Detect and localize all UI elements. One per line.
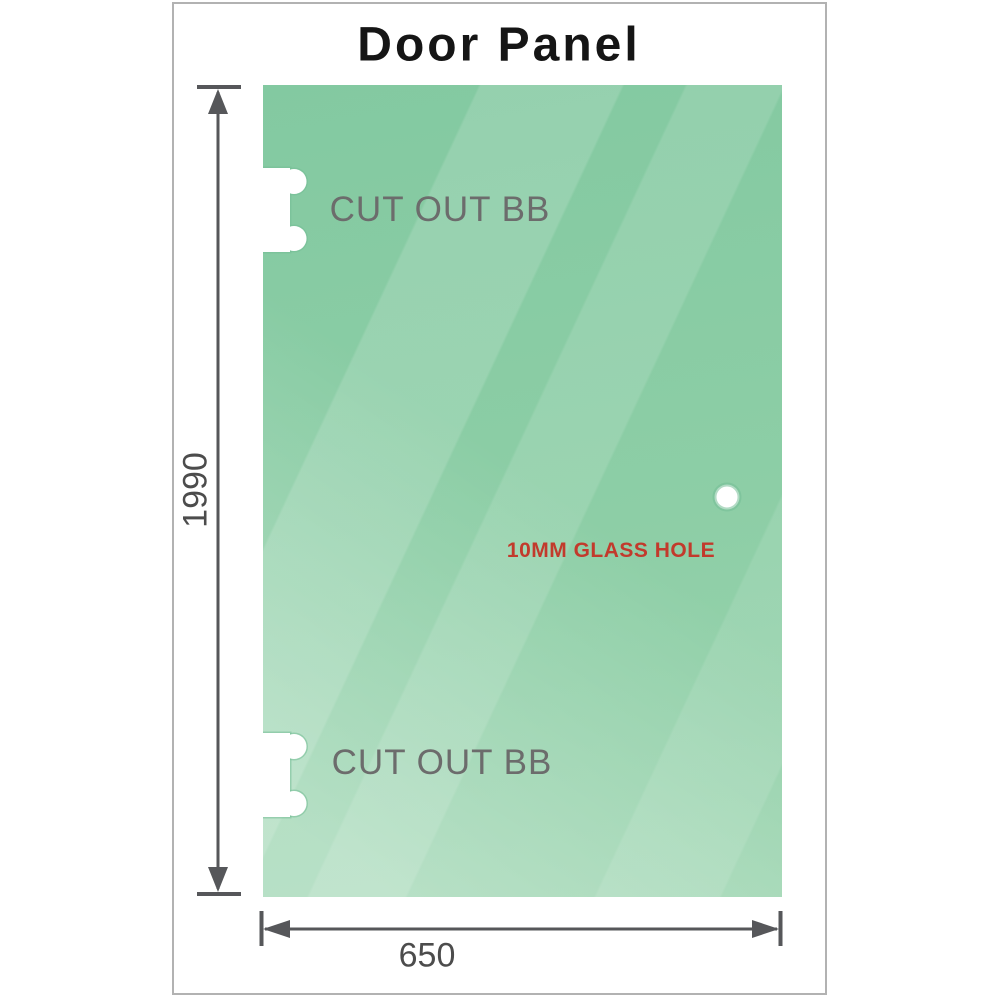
door-panel-diagram: Door Panel (0, 0, 1000, 1000)
cutout-top-label: CUT OUT BB (330, 190, 551, 230)
cutout-bottom-label: CUT OUT BB (332, 743, 553, 783)
glass-hole-label: 10MM GLASS HOLE (507, 539, 715, 563)
height-dimension-value: 1990 (177, 452, 216, 528)
width-dimension-value: 650 (399, 937, 456, 976)
page-title: Door Panel (357, 18, 640, 73)
